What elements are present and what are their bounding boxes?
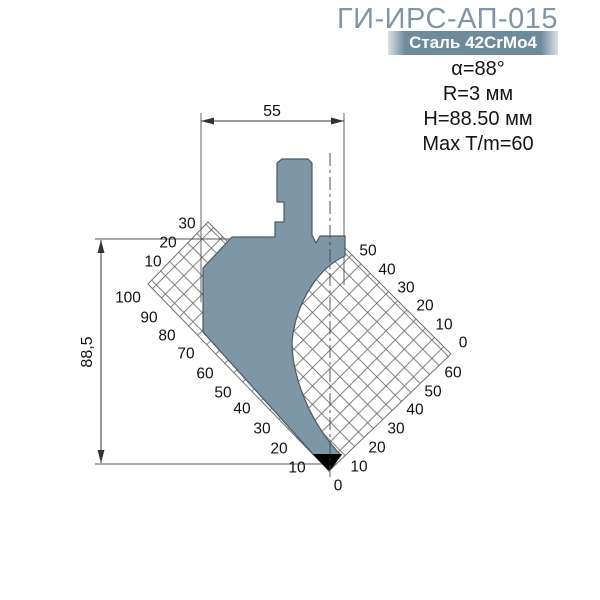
width-dimension-value: 55 [263, 103, 281, 120]
scale-label: 30 [253, 421, 271, 438]
scale-label: 100 [115, 290, 141, 307]
scale-label: 30 [178, 216, 196, 233]
arrow-right-icon [331, 118, 344, 125]
scale-label: 40 [406, 402, 424, 419]
scale-label: 50 [359, 243, 377, 260]
scale-label: 10 [144, 254, 162, 271]
scale-label: 40 [378, 262, 396, 279]
scale-label: 10 [350, 459, 368, 476]
scale-label: 20 [416, 298, 434, 315]
scale-label: 0 [334, 478, 343, 495]
scale-label: 10 [288, 460, 306, 477]
scale-label: 20 [270, 441, 288, 458]
datasheet-page: ГИ-ИРС-АП-015 Сталь 42CrMo4 α=88° R=3 мм… [0, 0, 600, 600]
scale-label: 80 [158, 328, 176, 345]
scale-label: 40 [233, 401, 251, 418]
scale-label: 10 [435, 317, 453, 334]
scale-label: 20 [368, 440, 386, 457]
arrow-down-icon [98, 450, 105, 463]
technical-drawing: 55 88,5 30201010090807060504030201005040… [0, 0, 600, 600]
scale-label: 50 [424, 384, 442, 401]
arrow-left-icon [201, 118, 214, 125]
scale-label: 60 [444, 365, 462, 382]
scale-label: 60 [196, 366, 214, 383]
scale-label: 70 [177, 346, 195, 363]
scale-label: 0 [459, 335, 468, 352]
scale-label: 50 [214, 385, 232, 402]
scale-label: 30 [397, 280, 415, 297]
scale-label: 90 [140, 310, 158, 327]
scale-label: 20 [159, 235, 177, 252]
height-dimension-value: 88,5 [79, 336, 96, 367]
scale-label: 30 [387, 421, 405, 438]
arrow-up-icon [98, 240, 105, 253]
